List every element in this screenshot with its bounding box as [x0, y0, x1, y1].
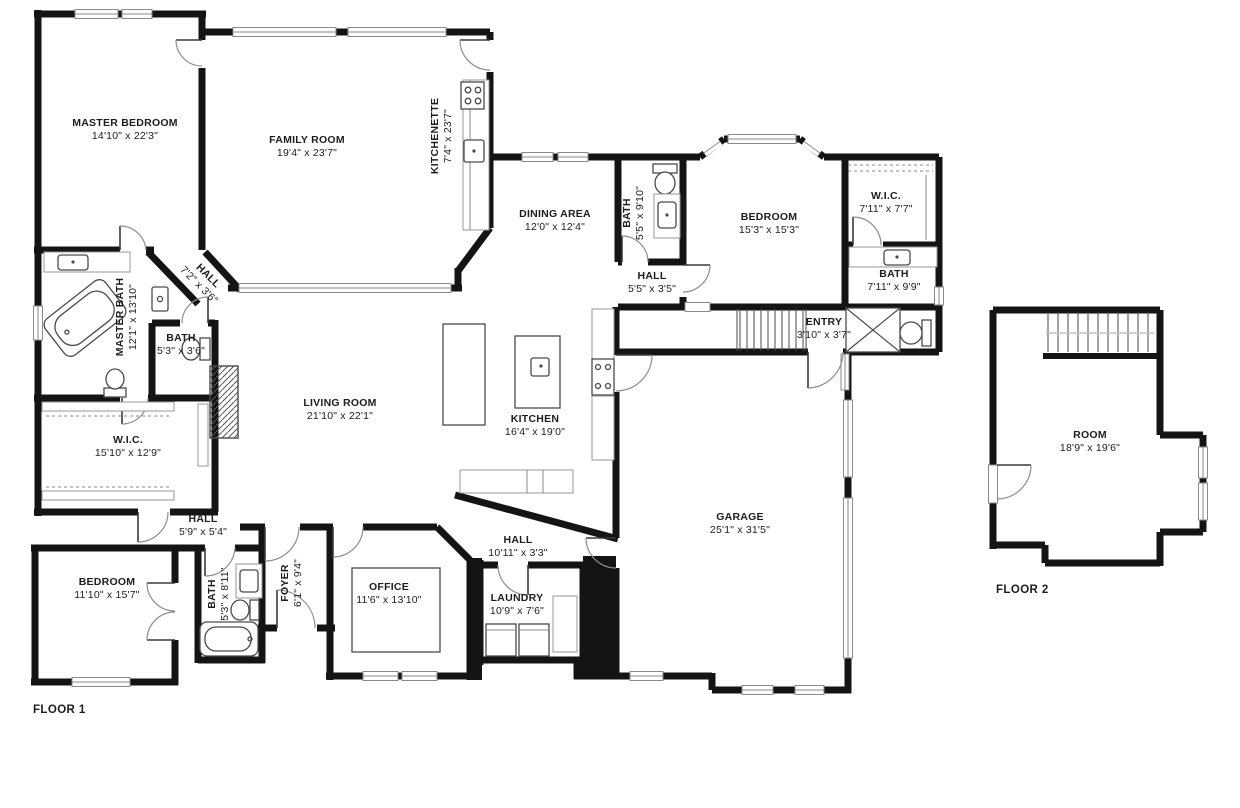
toilet-icon	[900, 320, 931, 346]
stove-icon	[592, 359, 614, 395]
room-name: MASTER BEDROOM	[72, 117, 178, 130]
stove-icon	[461, 82, 484, 109]
door	[616, 355, 652, 391]
door	[138, 512, 168, 542]
room-dims: 11'6" x 13'10"	[356, 594, 421, 607]
entry-door	[808, 352, 843, 388]
vanity-sink-icon	[44, 252, 130, 272]
window	[630, 672, 663, 681]
room-name: BATH	[157, 332, 205, 345]
room-dims: 15'10" x 12'9"	[95, 447, 161, 460]
room-dims: 5'3" x 8'11"	[219, 567, 232, 620]
room-dims: 7'11" x 9'9"	[867, 281, 920, 294]
floor2-label: FLOOR 2	[996, 584, 1049, 596]
window	[935, 287, 944, 305]
garage-door	[844, 498, 853, 658]
room-dims: 5'5" x 3'5"	[628, 283, 676, 296]
bathtub-icon	[200, 622, 258, 656]
toilet-icon	[104, 369, 126, 397]
window	[742, 686, 773, 695]
room-dims: 16'4" x 19'0"	[505, 426, 565, 439]
sink-icon	[152, 287, 168, 311]
room-label-bath-small: BATH 5'3" x 3'6"	[157, 332, 205, 358]
door	[997, 465, 1031, 499]
window	[558, 153, 588, 162]
room-name: LIVING ROOM	[303, 397, 376, 410]
room-name: MASTER BATH	[114, 278, 127, 356]
room-label-foyer: FOYER 6'1" x 9'4"	[279, 559, 305, 607]
sink-icon	[464, 140, 484, 162]
shower-icon	[846, 308, 900, 352]
room-dims: 21'10" x 22'1"	[303, 410, 376, 423]
window	[1199, 447, 1208, 478]
room-label-kitchen: KITCHEN 16'4" x 19'0"	[505, 413, 565, 439]
room-name: FOYER	[279, 559, 292, 607]
cased-opening	[239, 284, 451, 293]
room-label-wic-w: W.I.C. 15'10" x 12'9"	[95, 434, 161, 460]
room-label-hall-s: HALL 10'11" x 3'3"	[488, 534, 547, 560]
room-dims: 3'10" x 3'7"	[797, 329, 851, 342]
room-label-bath-upper: BATH 5'5" x 9'10"	[621, 186, 647, 240]
room-label-garage: GARAGE 25'1" x 31'5"	[710, 511, 770, 537]
stairs-icon	[737, 309, 806, 351]
room-name: ENTRY	[797, 316, 851, 329]
room-name: HALL	[628, 270, 676, 283]
door	[120, 226, 146, 250]
garage-door	[844, 400, 853, 477]
room-dims: 14'10" x 22'3"	[72, 130, 178, 143]
room-dims: 25'1" x 31'5"	[710, 524, 770, 537]
room-dims: 11'10" x 15'7"	[74, 589, 139, 602]
door	[265, 527, 299, 561]
room-dims: 12'1" x 13'10"	[127, 278, 140, 356]
room-name: GARAGE	[710, 511, 770, 524]
window	[34, 306, 43, 340]
window	[363, 672, 398, 681]
kitchen-island	[515, 336, 560, 408]
room-dims: 10'9" x 7'6"	[490, 605, 544, 618]
room-label-master-bedroom: MASTER BEDROOM 14'10" x 22'3"	[72, 117, 178, 143]
room-label-bath-ne: BATH 7'11" x 9'9"	[867, 268, 920, 294]
room-label-laundry: LAUNDRY 10'9" x 7'6"	[490, 592, 544, 618]
window	[402, 672, 437, 681]
room-dims: 5'5" x 9'10"	[634, 186, 647, 240]
counter	[592, 396, 614, 460]
counter	[553, 596, 577, 652]
room-name: FAMILY ROOM	[269, 134, 345, 147]
window	[72, 678, 130, 687]
room-label-kitchenette: KITCHENETTE 7'4" x 23'7"	[429, 98, 455, 174]
room-name: BATH	[206, 567, 219, 620]
room-dims: 7'4" x 23'7"	[442, 98, 455, 174]
window	[122, 10, 152, 19]
floor-plan-svg	[0, 0, 1240, 808]
room-name: HALL	[179, 513, 227, 526]
door	[333, 527, 363, 557]
window	[75, 10, 118, 19]
room-name: W.I.C.	[859, 190, 912, 203]
counter	[460, 470, 573, 493]
room-name: BATH	[621, 186, 634, 240]
room-label-room-f2: ROOM 18'9" x 19'6"	[1060, 429, 1120, 455]
room-name: HALL	[488, 534, 547, 547]
fireplace-icon	[210, 366, 238, 438]
floor-plan: MASTER BEDROOM 14'10" x 22'3" FAMILY ROO…	[0, 0, 1240, 808]
door	[853, 217, 881, 245]
room-label-bath-sw: BATH 5'3" x 8'11"	[206, 567, 232, 620]
washer-dryer-icon	[486, 624, 549, 656]
vanity-sink-icon	[654, 194, 680, 238]
toilet-icon	[231, 600, 259, 620]
room-name: LAUNDRY	[490, 592, 544, 605]
room-dims: 15'3" x 15'3"	[739, 224, 799, 237]
window	[233, 28, 336, 37]
cased-opening	[685, 303, 710, 312]
fridge-icon	[592, 309, 614, 359]
vanity-sink-icon	[236, 564, 262, 598]
room-label-wic-ne: W.I.C. 7'11" x 7'7"	[859, 190, 912, 216]
room-name: BEDROOM	[739, 211, 799, 224]
door	[460, 40, 490, 70]
floor1-label: FLOOR 1	[33, 704, 86, 716]
room-dims: 5'9" x 5'4"	[179, 526, 227, 539]
room-dims: 10'11" x 3'3"	[488, 547, 547, 560]
room-label-hall-sw: HALL 5'9" x 5'4"	[179, 513, 227, 539]
window	[522, 153, 553, 162]
room-dims: 18'9" x 19'6"	[1060, 442, 1120, 455]
room-name: BATH	[867, 268, 920, 281]
room-name: KITCHEN	[505, 413, 565, 426]
room-dims: 7'11" x 7'7"	[859, 203, 912, 216]
toilet-icon	[653, 164, 677, 194]
window	[795, 686, 824, 695]
door	[683, 265, 710, 292]
room-label-bedroom-sw: BEDROOM 11'10" x 15'7"	[74, 576, 139, 602]
room-name: W.I.C.	[95, 434, 161, 447]
room-dims: 19'4" x 23'7"	[269, 147, 345, 160]
room-dims: 6'1" x 9'4"	[292, 559, 305, 607]
room-label-office: OFFICE 11'6" x 13'10"	[356, 581, 421, 607]
door	[498, 565, 528, 595]
room-label-entry: ENTRY 3'10" x 3'7"	[797, 316, 851, 342]
window	[1199, 483, 1208, 520]
room-name: DINING AREA	[519, 208, 591, 221]
window	[348, 28, 446, 37]
room-label-dining-area: DINING AREA 12'0" x 12'4"	[519, 208, 591, 234]
room-name: BEDROOM	[74, 576, 139, 589]
room-label-master-bath: MASTER BATH 12'1" x 13'10"	[114, 278, 140, 356]
vanity-sink-icon	[849, 247, 937, 267]
room-name: KITCHENETTE	[429, 98, 442, 174]
room-label-living-room: LIVING ROOM 21'10" x 22'1"	[303, 397, 376, 423]
kitchen-island	[443, 324, 485, 425]
room-dims: 5'3" x 3'6"	[157, 345, 205, 358]
double-door	[147, 583, 175, 640]
door-opening	[989, 465, 998, 503]
room-name: OFFICE	[356, 581, 421, 594]
room-label-bedroom-ne: BEDROOM 15'3" x 15'3"	[739, 211, 799, 237]
room-name: ROOM	[1060, 429, 1120, 442]
room-label-hall-upper: HALL 5'5" x 3'5"	[628, 270, 676, 296]
room-dims: 12'0" x 12'4"	[519, 221, 591, 234]
stairs-icon	[1046, 312, 1154, 352]
room-label-family-room: FAMILY ROOM 19'4" x 23'7"	[269, 134, 345, 160]
door	[176, 40, 202, 66]
